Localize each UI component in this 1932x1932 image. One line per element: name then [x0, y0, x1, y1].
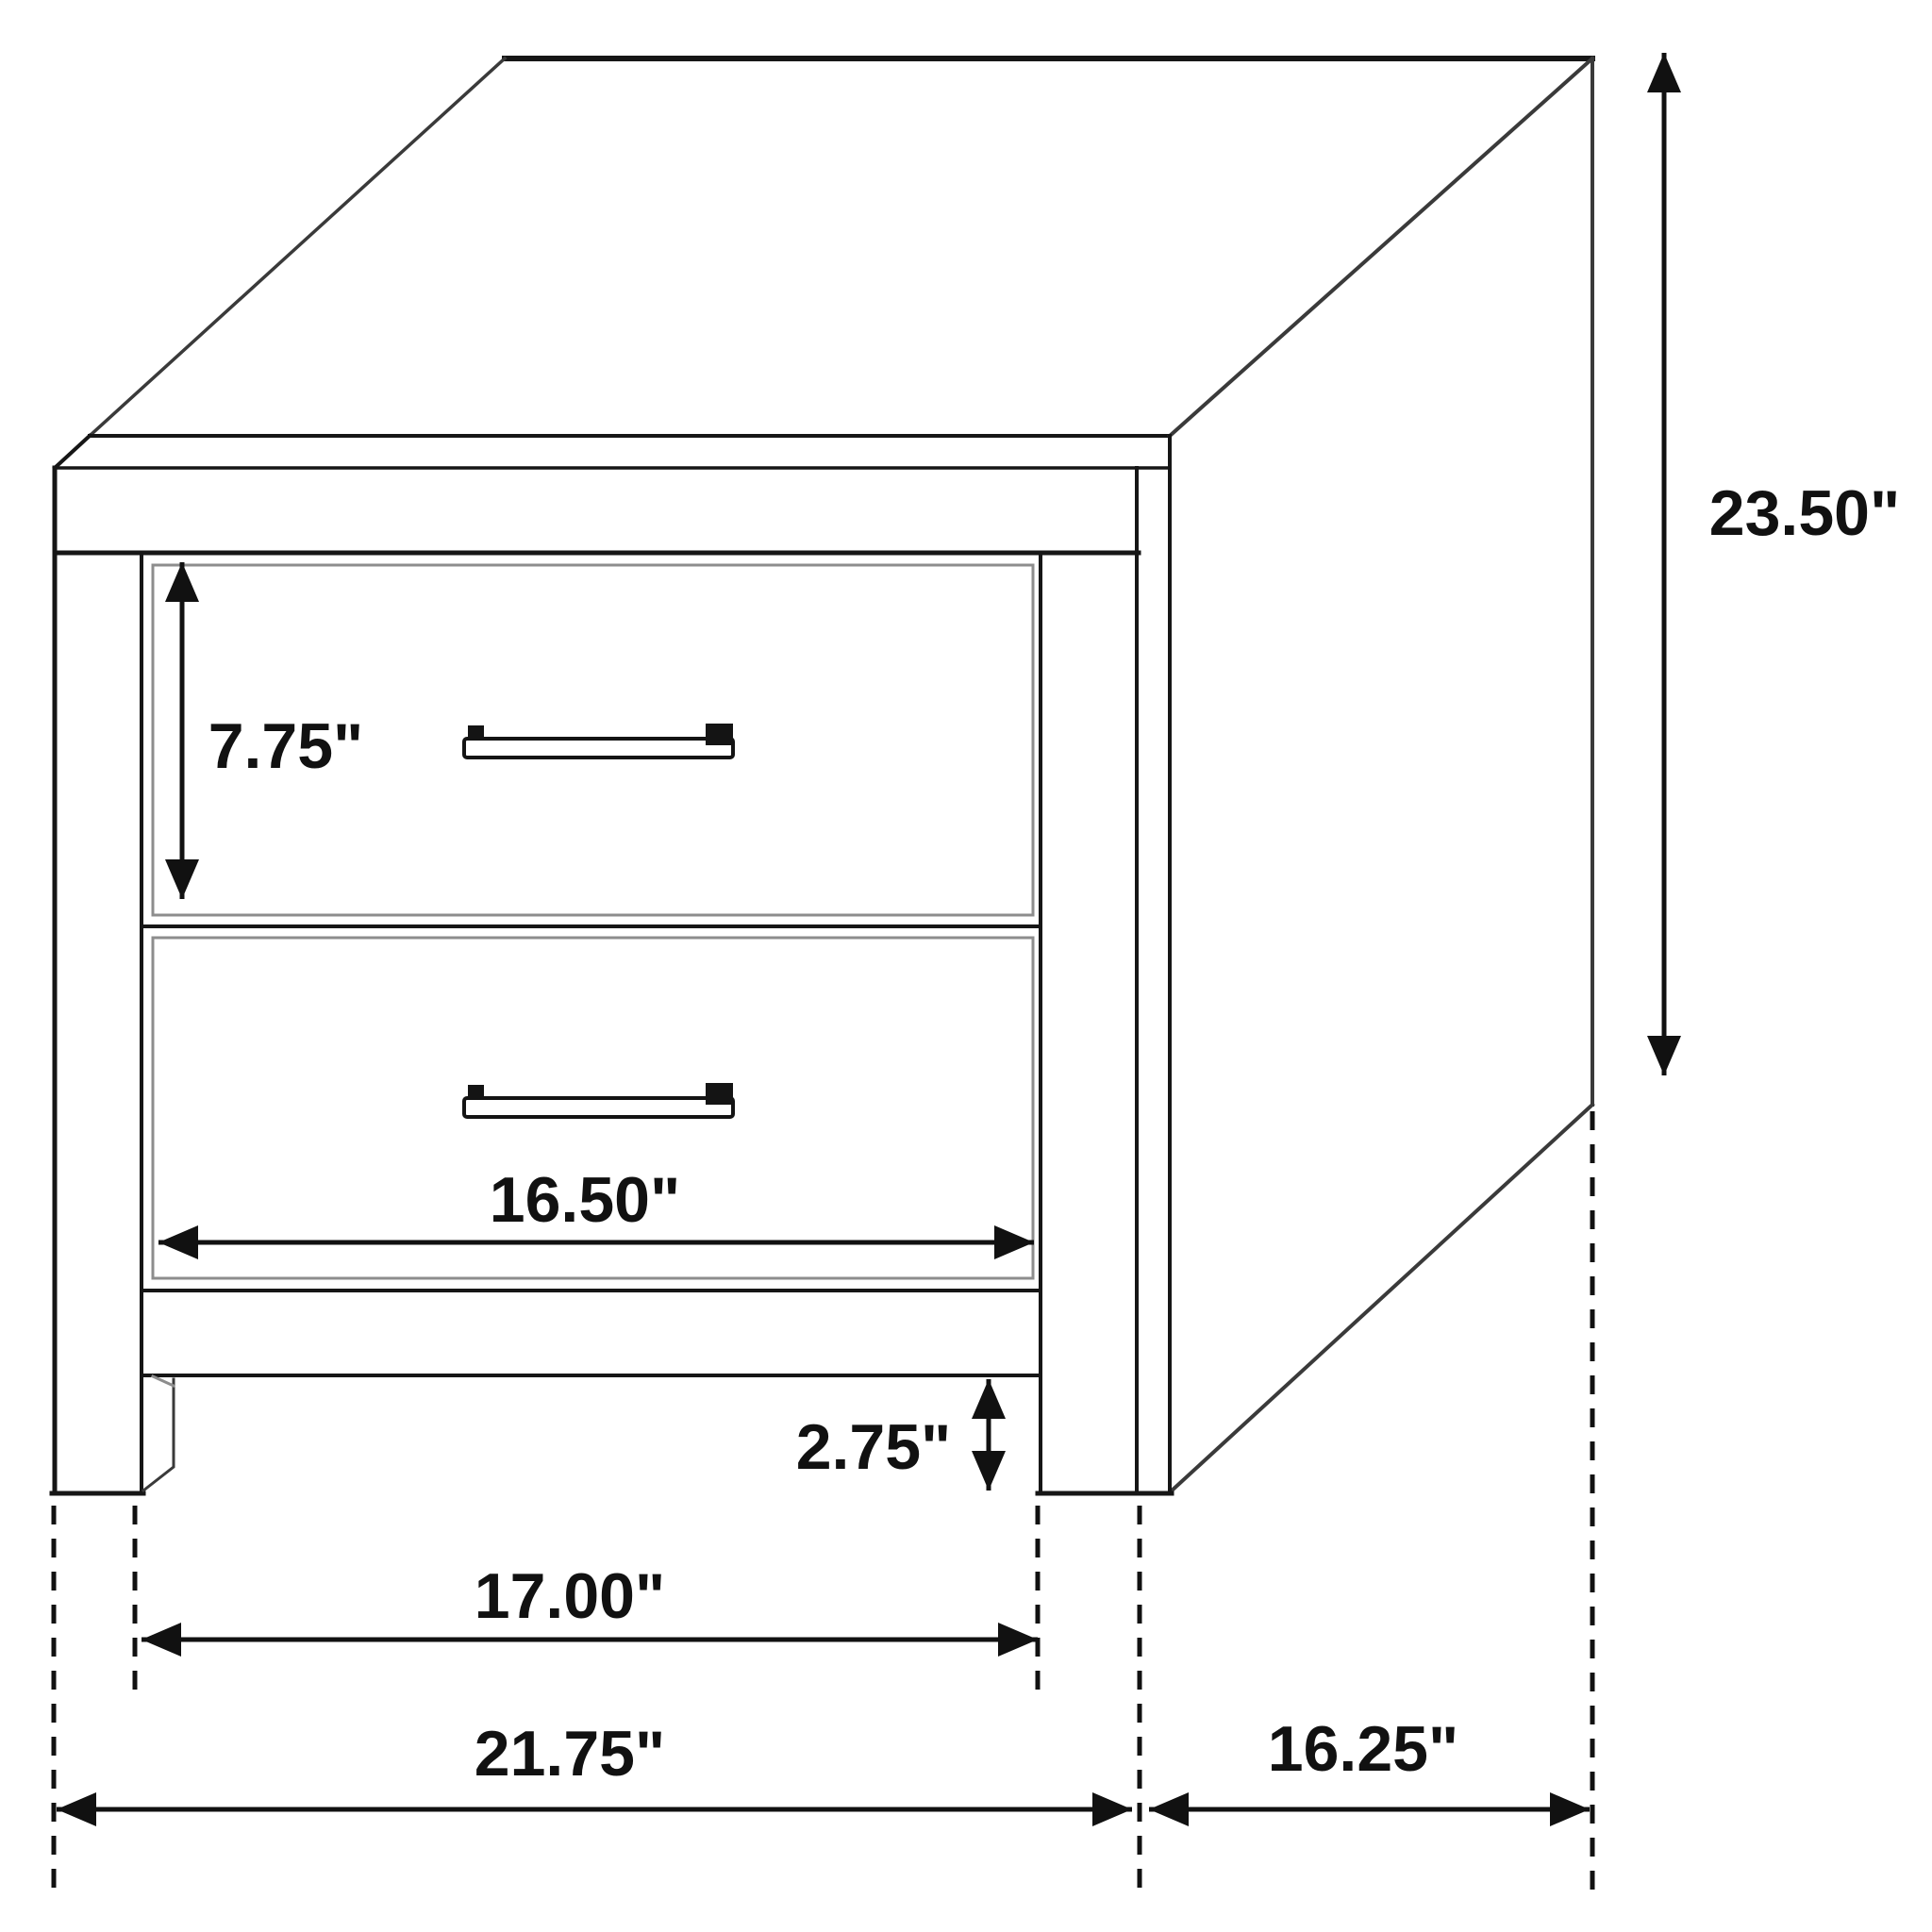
- top-front-corner-chamfer: [55, 436, 90, 468]
- handle-bar: [464, 1098, 733, 1117]
- handle-right-post: [706, 724, 733, 745]
- dim-label-drawer-width: 16.50": [490, 1164, 680, 1236]
- top-left-diagonal-edge: [90, 58, 505, 436]
- dim-label-side-depth: 16.25": [1268, 1713, 1458, 1785]
- dim-label-inner-leg-span: 17.00": [475, 1560, 665, 1632]
- top-right-diagonal-edge: [1170, 58, 1592, 436]
- nightstand-dimension-diagram: 7.75" 23.50" 16.50" 2.75" 17.00" 21.75" …: [0, 0, 1932, 1932]
- side-bottom-diagonal-edge: [1170, 1105, 1592, 1492]
- diagram-canvas: 7.75" 23.50" 16.50" 2.75" 17.00" 21.75" …: [0, 0, 1932, 1932]
- dimension-arrows: [57, 53, 1664, 1809]
- handle-bar: [464, 739, 733, 758]
- handle-left-post: [468, 1085, 484, 1099]
- left-leg-inner-chamfer: [153, 1376, 174, 1386]
- handle-left-post: [468, 725, 484, 740]
- dim-label-overall-height: 23.50": [1709, 477, 1900, 549]
- dim-label-leg-height: 2.75": [796, 1411, 952, 1483]
- handle-right-post: [706, 1083, 733, 1105]
- dim-label-overall-width: 21.75": [475, 1718, 665, 1790]
- bottom-drawer-handle: [464, 1083, 733, 1117]
- top-drawer-handle: [464, 724, 733, 758]
- dim-label-drawer-face-height: 7.75": [208, 710, 364, 782]
- dimension-labels: 7.75" 23.50" 16.50" 2.75" 17.00" 21.75" …: [208, 477, 1901, 1790]
- left-leg-inner-depth-edge: [143, 1379, 174, 1491]
